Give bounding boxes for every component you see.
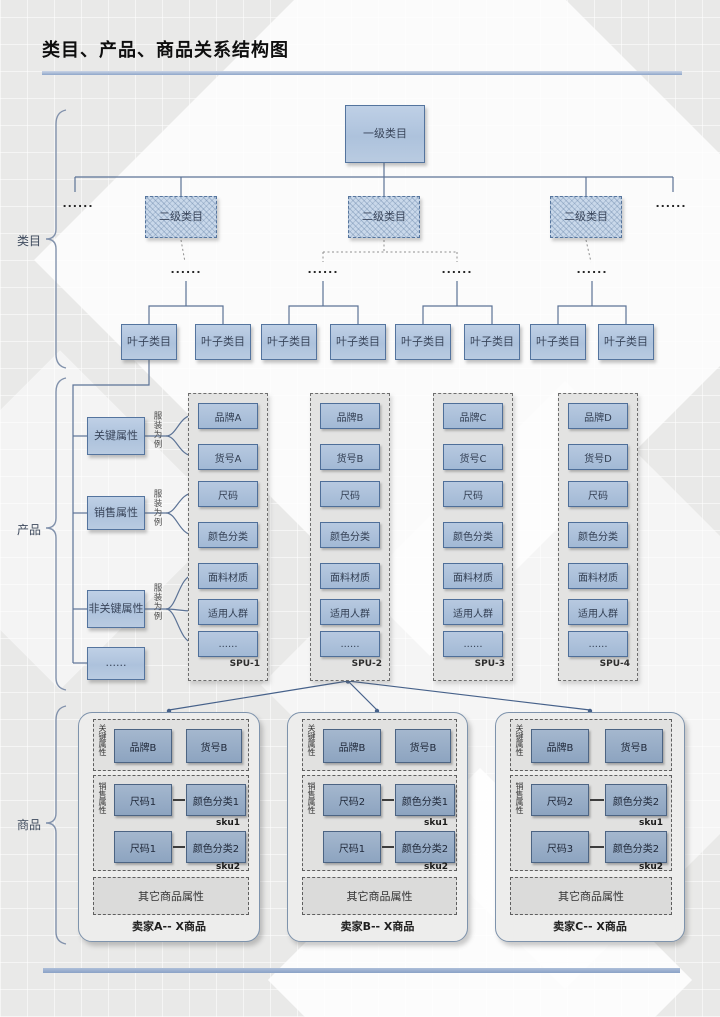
spu-attr-box: 适用人群 — [568, 599, 628, 625]
node-level1-category: 一级类目 — [345, 105, 425, 163]
node-level2-category: 二级类目 — [145, 196, 217, 238]
node-level2-category: 二级类目 — [550, 196, 622, 238]
node-leaf-category: 叶子类目 — [330, 324, 386, 360]
sku-pair-connector — [173, 846, 185, 848]
spu-attr-box: 尺码 — [443, 481, 503, 507]
spu-attr-box: 货号A — [198, 444, 258, 470]
sku-color-box: 颜色分类2 — [605, 784, 667, 816]
brace-goods — [46, 706, 66, 944]
node-leaf-category: 叶子类目 — [261, 324, 317, 360]
spu-attr-box: 面料材质 — [320, 563, 380, 589]
spu-column-3: 品牌C 货号C 尺码 颜色分类 面料材质 适用人群 ...... SPU-3 — [433, 393, 513, 681]
spu-attr-box: 货号B — [320, 444, 380, 470]
note-clothing-example: 服装为例 — [151, 583, 163, 621]
spu-attr-box: 面料材质 — [568, 563, 628, 589]
key-attributes-vlabel: 关键属性 — [306, 724, 317, 756]
ellipsis-subtree: ...... — [437, 263, 477, 276]
brace-product — [46, 378, 66, 690]
spu-attr-box: 面料材质 — [198, 563, 258, 589]
node-nonkey-attributes: 非关键属性 — [87, 590, 145, 628]
diagram-page: 类目、产品、商品关系结构图 类目 产品 商品 一级类目 ...... .....… — [0, 0, 720, 1017]
spu-attr-box: ...... — [198, 631, 258, 657]
spu-attr-box: ...... — [443, 631, 503, 657]
spu-attr-box: 适用人群 — [443, 599, 503, 625]
node-level2-category: 二级类目 — [348, 196, 420, 238]
note-clothing-example: 服装为例 — [151, 411, 163, 449]
seller-caption: 卖家C-- X商品 — [496, 918, 684, 934]
ellipsis-left: ...... — [58, 197, 98, 210]
sku-tag: sku1 — [216, 818, 240, 828]
sku-color-box: 颜色分类1 — [395, 784, 455, 816]
item-no-box: 货号B — [186, 729, 242, 763]
footer-rule — [43, 968, 680, 973]
seller-card-b: 关键属性 品牌B 货号B 销售属性 尺码2 颜色分类1 sku1 尺码1 颜色分… — [287, 712, 468, 942]
sales-attributes-vlabel: 销售属性 — [514, 782, 525, 814]
sku-tag: sku1 — [639, 818, 663, 828]
sales-attributes-vlabel: 销售属性 — [97, 782, 108, 814]
spu-column-1: 品牌A 货号A 尺码 颜色分类 面料材质 适用人群 ...... SPU-1 — [188, 393, 268, 681]
key-attributes-vlabel: 关键属性 — [514, 724, 525, 756]
sku-color-box: 颜色分类2 — [395, 831, 455, 863]
spu-attr-box: 颜色分类 — [320, 522, 380, 548]
other-attributes-box: 其它商品属性 — [302, 877, 457, 915]
section-label-product: 产品 — [17, 521, 41, 538]
spu-attr-box: 品牌A — [198, 403, 258, 429]
spu-attr-box: ...... — [320, 631, 380, 657]
sku-pair-connector — [382, 799, 394, 801]
title-underline — [42, 71, 682, 75]
sku-size-box: 尺码3 — [531, 831, 589, 863]
sku-size-box: 尺码1 — [323, 831, 381, 863]
spu-attr-box: 品牌B — [320, 403, 380, 429]
spu-attr-box: 颜色分类 — [198, 522, 258, 548]
spu-attr-box: 适用人群 — [320, 599, 380, 625]
spu-attr-box: 品牌C — [443, 403, 503, 429]
node-key-attributes: 关键属性 — [87, 417, 145, 455]
spu-label: SPU-2 — [352, 659, 382, 669]
spu-column-4: 品牌D 货号D 尺码 颜色分类 面料材质 适用人群 ...... SPU-4 — [558, 393, 638, 681]
spu-attr-box: 品牌D — [568, 403, 628, 429]
key-attributes-group: 关键属性 品牌B 货号B — [510, 719, 672, 771]
sku-color-box: 颜色分类2 — [186, 831, 246, 863]
node-leaf-category: 叶子类目 — [530, 324, 586, 360]
sku-size-box: 尺码2 — [323, 784, 381, 816]
item-no-box: 货号B — [605, 729, 663, 763]
key-attributes-group: 关键属性 品牌B 货号B — [93, 719, 249, 771]
spu-attr-box: ...... — [568, 631, 628, 657]
sales-attributes-group: 销售属性 尺码2 颜色分类2 sku1 尺码3 颜色分类2 sku2 — [510, 775, 672, 871]
spu-attr-box: 颜色分类 — [443, 522, 503, 548]
sku-tag: sku2 — [424, 862, 448, 872]
sku-tag: sku2 — [216, 862, 240, 872]
node-leaf-category: 叶子类目 — [195, 324, 251, 360]
other-attributes-box: 其它商品属性 — [93, 877, 249, 915]
brace-category — [46, 110, 66, 368]
category-connectors — [75, 163, 673, 324]
seller-card-a: 关键属性 品牌B 货号B 销售属性 尺码1 颜色分类1 sku1 尺码1 颜色分… — [78, 712, 260, 942]
sku-size-box: 尺码1 — [114, 831, 172, 863]
sku-pair-connector — [382, 846, 394, 848]
sku-pair-connector — [590, 799, 604, 801]
sku-size-box: 尺码1 — [114, 784, 172, 816]
sku-tag: sku1 — [424, 818, 448, 828]
sku-color-box: 颜色分类2 — [605, 831, 667, 863]
spu-attr-box: 适用人群 — [198, 599, 258, 625]
brand-box: 品牌B — [531, 729, 589, 763]
spu-attr-box: 货号D — [568, 444, 628, 470]
spu-attr-box: 面料材质 — [443, 563, 503, 589]
node-leaf-category: 叶子类目 — [464, 324, 520, 360]
ellipsis-subtree: ...... — [166, 263, 206, 276]
seller-card-c: 关键属性 品牌B 货号B 销售属性 尺码2 颜色分类2 sku1 尺码3 颜色分… — [495, 712, 685, 942]
sales-attributes-group: 销售属性 尺码1 颜色分类1 sku1 尺码1 颜色分类2 sku2 — [93, 775, 249, 871]
category-dotted-connectors — [181, 240, 591, 262]
key-attributes-group: 关键属性 品牌B 货号B — [302, 719, 457, 771]
seller-caption: 卖家A-- X商品 — [79, 918, 259, 934]
spu-attr-box: 尺码 — [198, 481, 258, 507]
other-attributes-box: 其它商品属性 — [510, 877, 672, 915]
sales-attributes-group: 销售属性 尺码2 颜色分类1 sku1 尺码1 颜色分类2 sku2 — [302, 775, 457, 871]
seller-caption: 卖家B-- X商品 — [288, 918, 467, 934]
ellipsis-subtree: ...... — [303, 263, 343, 276]
spu-column-2: 品牌B 货号B 尺码 颜色分类 面料材质 适用人群 ...... SPU-2 — [310, 393, 390, 681]
section-braces — [46, 110, 66, 944]
brand-box: 品牌B — [114, 729, 172, 763]
node-leaf-category: 叶子类目 — [121, 324, 177, 360]
node-leaf-category: 叶子类目 — [598, 324, 654, 360]
item-no-box: 货号B — [395, 729, 451, 763]
spu-label: SPU-4 — [600, 659, 630, 669]
section-label-goods: 商品 — [17, 816, 41, 833]
node-attributes-ellipsis: ...... — [87, 647, 145, 680]
note-clothing-example: 服装为例 — [151, 489, 163, 527]
sales-attributes-vlabel: 销售属性 — [306, 782, 317, 814]
spu-attr-box: 尺码 — [320, 481, 380, 507]
page-title: 类目、产品、商品关系结构图 — [42, 36, 289, 62]
sku-size-box: 尺码2 — [531, 784, 589, 816]
spu-attr-box: 货号C — [443, 444, 503, 470]
brand-box: 品牌B — [323, 729, 381, 763]
spu-attr-box: 颜色分类 — [568, 522, 628, 548]
sku-pair-connector — [590, 846, 604, 848]
spu-to-seller-connectors — [167, 678, 592, 713]
ellipsis-subtree: ...... — [572, 263, 612, 276]
section-label-category: 类目 — [17, 232, 41, 249]
sku-tag: sku2 — [639, 862, 663, 872]
sku-color-box: 颜色分类1 — [186, 784, 246, 816]
node-leaf-category: 叶子类目 — [395, 324, 451, 360]
spu-label: SPU-1 — [230, 659, 260, 669]
key-attributes-vlabel: 关键属性 — [97, 724, 108, 756]
sku-pair-connector — [173, 799, 185, 801]
ellipsis-right: ...... — [651, 197, 691, 210]
spu-attr-box: 尺码 — [568, 481, 628, 507]
spu-label: SPU-3 — [475, 659, 505, 669]
node-sales-attributes: 销售属性 — [87, 496, 145, 530]
